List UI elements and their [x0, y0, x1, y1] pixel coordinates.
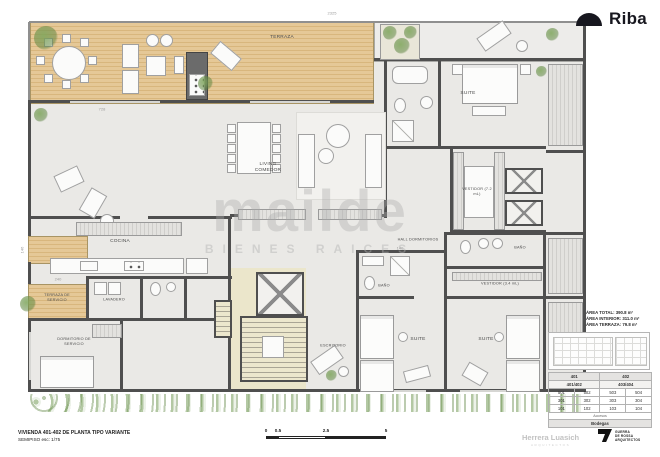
room-label-bano2: BAÑO — [514, 246, 526, 251]
service-wardrobe — [92, 324, 122, 338]
plant — [326, 370, 337, 381]
plant — [546, 28, 559, 41]
plant — [198, 76, 213, 91]
sink — [166, 282, 176, 292]
dimension-text: 728 — [99, 107, 106, 112]
riba-logo-text: Riba — [609, 12, 647, 26]
service-stair — [214, 300, 232, 338]
scale-tick: 0.5 — [275, 428, 281, 433]
plant — [20, 296, 36, 312]
dining-chair — [272, 134, 281, 143]
unit-stack-table: 401402401/402403/40450150250350430130230… — [548, 372, 652, 428]
shower — [390, 256, 410, 276]
washing-machine — [94, 282, 107, 295]
laundry-east-wall — [140, 276, 143, 318]
sink — [478, 238, 489, 249]
watermark-brand: mailde — [150, 178, 470, 245]
side-table — [494, 332, 504, 342]
scale-segment — [278, 436, 326, 439]
title-block: VIVIENDA 401-402 DE PLANTA TIPO VARIANTE… — [18, 430, 130, 442]
window-service-bedroom — [29, 332, 31, 380]
toilet — [364, 276, 375, 290]
kitchen-sink — [80, 261, 98, 271]
scale-tick: 2.5 — [323, 428, 329, 433]
suite2-west-wall — [356, 252, 359, 392]
exterior-wall-left-mid — [28, 262, 31, 284]
side-table — [398, 332, 408, 342]
terrace-lounge-chair — [122, 44, 139, 68]
bathtub — [392, 66, 428, 84]
terrace-pouf — [146, 34, 159, 47]
guerra-line: ARQUITECTOS — [615, 438, 640, 442]
area-info: ÁREA TOTAL: 390.8 m² ÁREA INTERIOR: 311.… — [586, 310, 639, 328]
key-plan-thumbnail — [548, 332, 650, 370]
room-label-suite3: SUITE — [478, 337, 493, 343]
scale-tick: 5 — [385, 428, 388, 433]
dimension-text: 146 — [20, 247, 25, 254]
suite2-bed — [360, 315, 394, 359]
plant — [536, 66, 547, 77]
guerra-de-rossa-logo-icon — [598, 429, 612, 442]
scale-tick: 0 — [265, 428, 268, 433]
scale-bar: 0 0.5 2.5 5 — [266, 428, 386, 442]
fridge — [186, 258, 208, 274]
bath1-bottom-wall — [358, 296, 414, 299]
herrera-luasich-logo: Herrera Luasich ARQUITECTOS — [522, 433, 579, 447]
closet — [548, 64, 583, 146]
herrera-luasich-subtext: ARQUITECTOS — [522, 443, 579, 447]
room-label-cocina: COCINA — [110, 239, 130, 245]
floor-plan-sheet: TERRAZA LIVING COMEDOR COCINA LAVADERO T… — [0, 0, 660, 457]
closet — [548, 238, 583, 294]
room-label-suite2: SUITE — [410, 337, 425, 343]
suite3-bed — [506, 315, 540, 359]
kitchen-counter — [50, 258, 184, 274]
cooktop — [124, 261, 144, 271]
room-label-terraza-servicio: TERRAZA DE SERVICIO — [40, 293, 74, 303]
landscaping-strip — [30, 394, 584, 412]
room-label-bano1: BAÑO — [378, 284, 390, 289]
toilet — [394, 98, 406, 113]
scale-segment — [266, 436, 278, 439]
key-plan-detail — [553, 337, 613, 366]
service-elevator-1 — [505, 168, 543, 194]
bed-bench — [472, 106, 506, 116]
terrace-chair — [88, 56, 97, 65]
room-label-terraza: TERRAZA — [270, 35, 294, 41]
terrace-parapet-left — [28, 22, 30, 102]
terrace-chair — [80, 74, 89, 83]
dining-chair — [227, 124, 236, 133]
service-bath-wall — [184, 276, 187, 318]
dimension-text: 2325 — [328, 11, 337, 16]
watermark-tagline: BIENES RAICES — [150, 242, 470, 256]
master-suite-south-wall — [386, 146, 546, 149]
window-dining — [250, 101, 330, 103]
shower — [392, 120, 414, 142]
suite3-bed — [506, 360, 540, 392]
scale-segment — [326, 436, 386, 439]
closet — [494, 152, 505, 230]
nightstand — [520, 64, 531, 75]
plant — [383, 26, 397, 40]
room-label-escritorio: ESCRITORIO — [320, 344, 346, 349]
stack-table-grid: 401402401/402403/40450150250350430130230… — [548, 372, 652, 428]
desk-chair — [338, 366, 349, 377]
herrera-luasich-name: Herrera Luasich — [522, 433, 579, 442]
right-column-wall-2 — [546, 232, 583, 235]
terrace-armchair — [174, 56, 184, 74]
room-label-dormitorio-servicio: DORMITORIO DE SERVICIO — [52, 337, 96, 347]
closet — [452, 272, 542, 281]
right-column-wall-1 — [546, 150, 583, 153]
washing-machine — [108, 282, 121, 295]
terrace-coffee-table — [146, 56, 166, 76]
guerra-de-rossa-text: GUERRA DE ROSSA ARQUITECTOS — [615, 430, 640, 442]
plant — [34, 26, 58, 50]
nightstand — [452, 64, 463, 75]
area-terraza: ÁREA TERRAZA: 79.8 m² — [586, 322, 639, 328]
stair-landing — [262, 336, 284, 358]
terrace-pouf — [160, 34, 173, 47]
service-bedroom-wall-top — [28, 318, 228, 321]
master-bed — [462, 64, 518, 104]
sink — [420, 96, 433, 109]
laundry-west-wall — [86, 276, 89, 318]
window-living — [70, 101, 160, 103]
suite2-bed — [360, 360, 394, 392]
dining-chair — [272, 124, 281, 133]
drawing-title: VIVIENDA 401-402 DE PLANTA TIPO VARIANTE — [18, 430, 130, 436]
coffee-table — [318, 148, 334, 164]
terrace-chair — [36, 56, 45, 65]
terrace-chair — [62, 80, 71, 89]
key-plan-detail — [615, 337, 647, 366]
master-bath-east-wall — [438, 58, 441, 148]
dining-chair — [272, 144, 281, 153]
dining-chair — [227, 164, 236, 173]
dining-chair — [227, 134, 236, 143]
suite3-east-wall — [543, 232, 546, 392]
guerra-de-rossa-logo: GUERRA DE ROSSA ARQUITECTOS — [598, 429, 640, 442]
dining-chair — [227, 144, 236, 153]
room-label-vestidor2: VESTIDOR (3.4 mL) — [480, 282, 520, 287]
dining-chair — [227, 154, 236, 163]
service-elevator-2 — [505, 200, 543, 226]
suite2-east-wall — [444, 232, 447, 392]
room-label-suite-principal: SUITE — [460, 91, 475, 97]
elevator — [256, 272, 304, 316]
plant — [34, 108, 48, 122]
coffee-table — [326, 124, 350, 148]
bath2-bottom-wall — [447, 266, 545, 269]
riba-logo-icon — [576, 13, 602, 26]
room-label-living: LIVING COMEDOR — [252, 162, 284, 174]
service-bed — [40, 356, 94, 388]
dimension-text: 240 — [55, 277, 62, 282]
right-column-wall-3 — [546, 296, 583, 299]
sink — [492, 238, 503, 249]
terrace-lounge-chair — [122, 70, 139, 94]
terrace-parapet-right — [374, 21, 584, 23]
terrace-parapet — [29, 21, 374, 23]
bath-counter — [362, 256, 384, 266]
terrace-chair — [62, 34, 71, 43]
terrace-chair — [44, 74, 53, 83]
drawing-subtitle: SEMIPISO esc: 1/75 — [18, 437, 130, 442]
plant — [394, 38, 410, 54]
toilet — [150, 282, 161, 296]
riba-logo: Riba — [576, 12, 647, 26]
vestidor2-bottom-wall — [447, 296, 545, 299]
terrace-chair — [80, 38, 89, 47]
kitchen-laundry-wall — [86, 276, 232, 279]
scale-bar-graphic — [266, 436, 386, 439]
room-label-lavadero: LAVADERO — [103, 298, 125, 303]
terrace-side-table — [516, 40, 528, 52]
plant — [404, 26, 417, 39]
